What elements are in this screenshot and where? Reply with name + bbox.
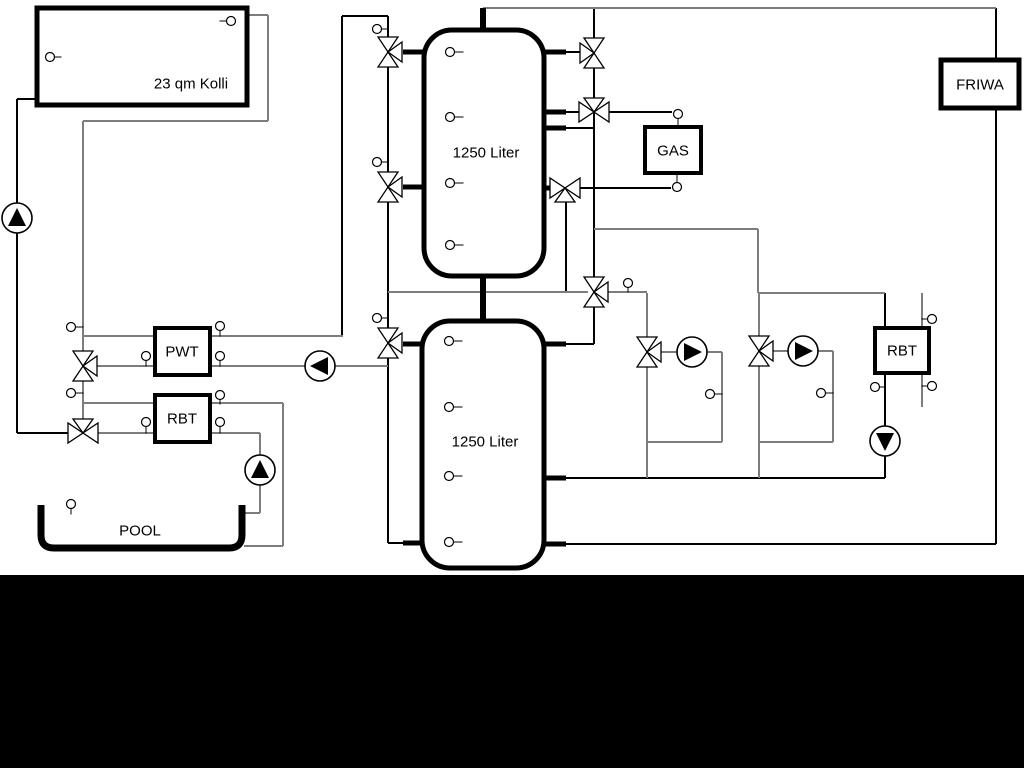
sensor-icon xyxy=(216,418,225,427)
rbt-right-label: RBT xyxy=(887,343,917,360)
sensor-icon xyxy=(624,279,633,288)
sensor-icon xyxy=(227,17,236,26)
buffer-tank-2-label: 1250 Liter xyxy=(452,434,519,451)
sensor-icon xyxy=(446,179,455,188)
sensor-icon xyxy=(928,315,937,324)
sensor-icon xyxy=(67,323,76,332)
sensor-icon xyxy=(216,352,225,361)
diagram-canvas: 1250 Liter1250 Liter23 qm KolliPWTRBTGAS… xyxy=(0,0,1024,768)
buffer-tank-1-label: 1250 Liter xyxy=(453,145,520,162)
sensor-icon xyxy=(373,25,382,34)
sensor-icon xyxy=(871,383,880,392)
sensor-icon xyxy=(373,314,382,323)
pwt-heat-exchanger-label: PWT xyxy=(165,344,198,361)
sensor-icon xyxy=(142,352,151,361)
sensor-icon xyxy=(706,390,715,399)
sensor-icon xyxy=(216,322,225,331)
sensor-icon xyxy=(216,391,225,400)
sensor-icon xyxy=(446,48,455,57)
schematic-diagram: 1250 Liter1250 Liter23 qm KolliPWTRBTGAS… xyxy=(0,0,1024,768)
sensor-icon xyxy=(373,158,382,167)
sensor-icon xyxy=(445,472,454,481)
sensor-icon xyxy=(928,382,937,391)
sensor-icon xyxy=(67,500,76,509)
sensor-icon xyxy=(673,183,682,192)
sensor-icon xyxy=(446,113,455,122)
sensor-icon xyxy=(445,538,454,547)
pool-label: POOL xyxy=(119,523,161,540)
sensor-icon xyxy=(674,110,683,119)
solar-collector-label: 23 qm Kolli xyxy=(154,76,228,93)
sensor-icon xyxy=(445,337,454,346)
rbt-left-label: RBT xyxy=(167,411,197,428)
sensor-icon xyxy=(142,418,151,427)
friwa-station-label: FRIWA xyxy=(956,77,1004,94)
sensor-icon xyxy=(46,53,55,62)
bottom-black-bar xyxy=(0,575,1024,768)
sensor-icon xyxy=(446,241,455,250)
gas-boiler-label: GAS xyxy=(657,143,689,160)
sensor-icon xyxy=(445,403,454,412)
sensor-icon xyxy=(817,389,826,398)
sensor-icon xyxy=(67,389,76,398)
